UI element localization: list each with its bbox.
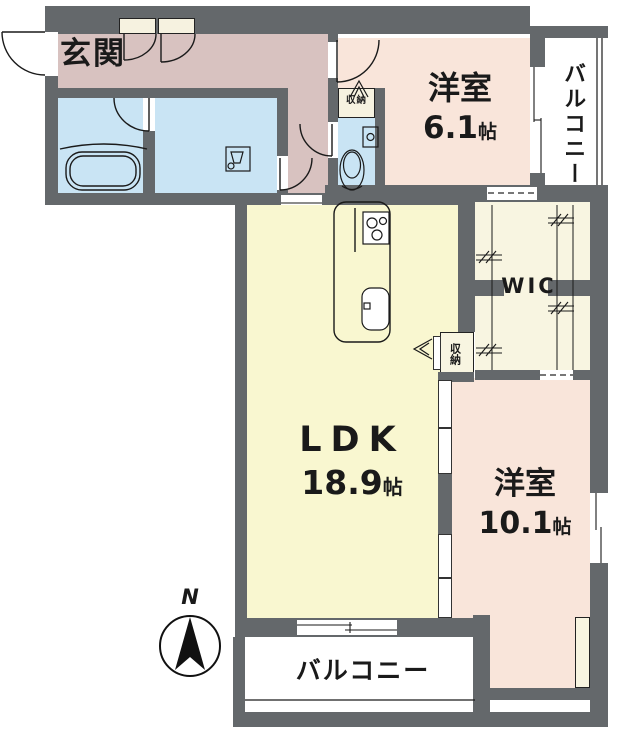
ldk-storage-door <box>433 336 441 370</box>
balcony-bottom-label: バルコニー <box>273 658 453 684</box>
toilet-door-opening <box>328 122 338 158</box>
washroom-door-opening <box>277 156 288 190</box>
wall <box>438 474 452 534</box>
wall <box>328 34 338 42</box>
room-entrance-label: 玄関 <box>60 38 126 71</box>
north-label: N <box>176 586 204 608</box>
wall <box>458 193 475 332</box>
ldk-storage-label: 収納 <box>449 337 461 371</box>
bedroom-corner-duct <box>575 617 590 688</box>
room-ldk <box>247 205 458 618</box>
sliding-door-panel <box>438 578 452 618</box>
ldk-window <box>297 620 397 635</box>
wall <box>490 688 608 700</box>
western-1-window <box>530 67 545 173</box>
room-western-2-size: 10.1帖 <box>455 508 595 540</box>
balcony-right-label: バルコニー <box>561 52 584 197</box>
wall <box>45 76 58 205</box>
shoe-cabinet-door <box>158 18 195 34</box>
compass-icon <box>160 616 220 676</box>
entrance-door-opening <box>45 32 58 76</box>
wall <box>277 88 288 156</box>
room-washroom <box>155 98 277 195</box>
hall-storage-label: 収納 <box>338 96 375 106</box>
shoe-cabinet-door <box>119 18 156 34</box>
room-ldk-size: 18.9帖 <box>282 466 422 501</box>
entrance-door-arc <box>2 32 45 75</box>
wic-opening-bottom <box>540 370 573 380</box>
room-western-1-size: 6.1帖 <box>400 112 520 145</box>
bathroom-door-opening <box>143 98 155 131</box>
corridor-ldk-opening <box>281 195 322 205</box>
wall <box>590 563 608 727</box>
room-wic-label: WIC <box>490 275 568 297</box>
wall <box>45 6 530 34</box>
wall <box>233 712 488 727</box>
wall <box>480 712 608 727</box>
room-toilet <box>338 118 375 195</box>
wall <box>328 88 338 122</box>
western-1-door-opening <box>328 42 338 78</box>
room-western-2-label: 洋室 <box>460 468 590 501</box>
wic-opening-top <box>487 187 537 200</box>
room-western-1-label: 洋室 <box>400 72 520 106</box>
floor-plan: 玄関 洋室 6.1帖 バルコニー WIC 収納 収納 LDK 18.9帖 洋室 … <box>0 0 622 741</box>
wall <box>247 193 460 205</box>
wall <box>473 615 490 727</box>
sliding-door-panel <box>438 534 452 578</box>
room-ldk-label: LDK <box>282 422 422 459</box>
bedroom-bottom-window <box>490 700 585 712</box>
wall <box>375 88 385 195</box>
sliding-door-panel <box>438 380 452 428</box>
wall <box>590 185 608 493</box>
wall <box>235 193 247 637</box>
room-bathroom <box>58 98 143 195</box>
wall <box>143 131 155 195</box>
sliding-door-panel <box>438 428 452 474</box>
wall <box>58 88 277 98</box>
wall <box>328 78 338 90</box>
